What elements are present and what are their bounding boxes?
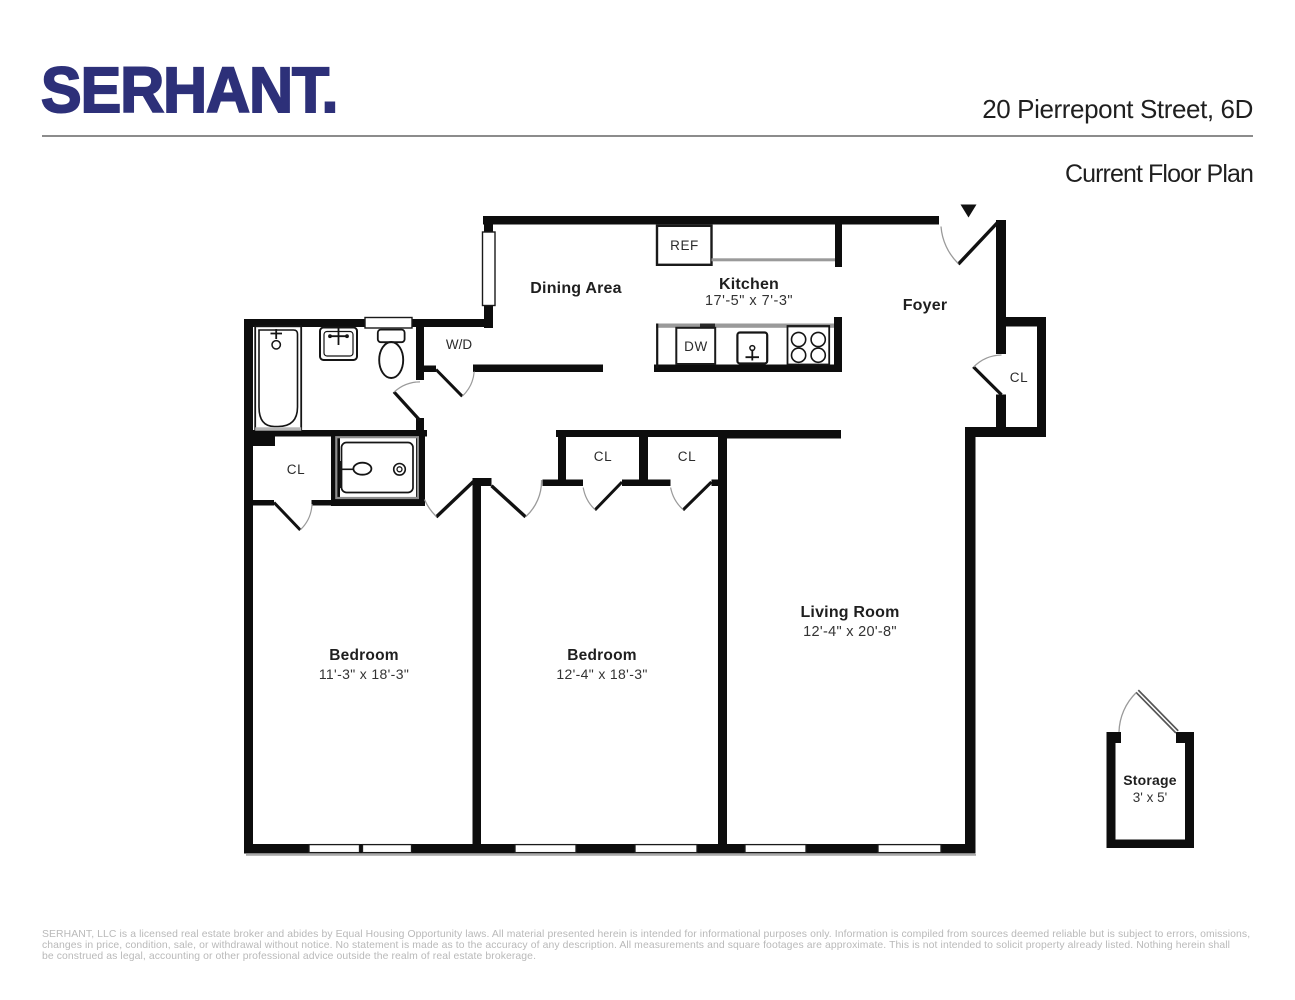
svg-text:Dining Area: Dining Area (530, 280, 621, 297)
svg-text:Bedroom: Bedroom (329, 647, 398, 664)
svg-text:Kitchen: Kitchen (719, 276, 779, 293)
svg-text:17'-5" x 7'-3": 17'-5" x 7'-3" (705, 293, 793, 309)
svg-text:Bedroom: Bedroom (567, 647, 636, 664)
svg-text:CL: CL (1010, 370, 1028, 385)
svg-text:W/D: W/D (446, 337, 472, 352)
svg-text:11'-3" x 18'-3": 11'-3" x 18'-3" (319, 666, 409, 682)
svg-text:Storage: Storage (1123, 772, 1177, 788)
svg-text:12'-4" x 18'-3": 12'-4" x 18'-3" (556, 666, 647, 682)
svg-text:CL: CL (594, 449, 612, 464)
svg-text:Living Room: Living Room (800, 604, 899, 621)
svg-text:CL: CL (678, 449, 696, 464)
svg-text:CL: CL (287, 462, 305, 477)
svg-text:Foyer: Foyer (903, 297, 948, 314)
svg-text:DW: DW (684, 339, 708, 354)
svg-text:REF: REF (670, 238, 699, 253)
svg-text:3' x 5': 3' x 5' (1133, 790, 1167, 805)
svg-text:12'-4" x 20'-8": 12'-4" x 20'-8" (803, 624, 897, 640)
